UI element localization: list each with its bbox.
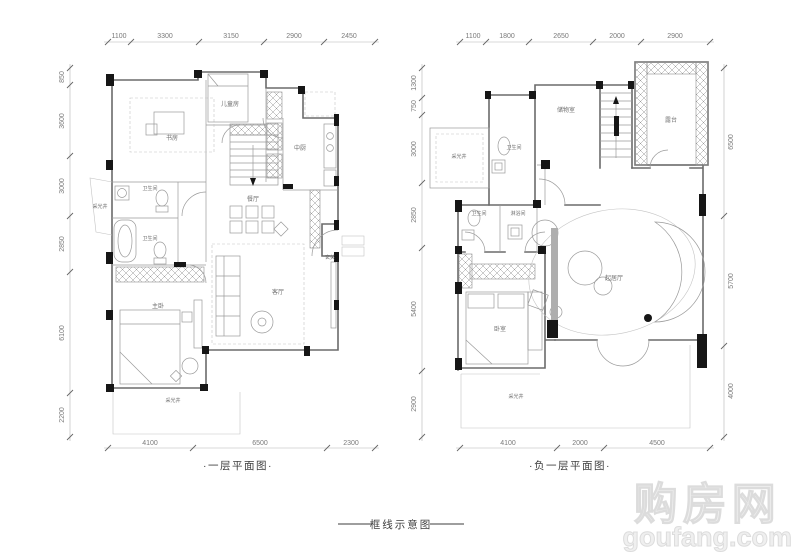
svg-text:2300: 2300 xyxy=(343,440,359,447)
room-label-kids: 儿童房 xyxy=(221,100,239,108)
room-label-bath-upper: 卫生间 xyxy=(506,144,521,151)
svg-text:3600: 3600 xyxy=(59,113,66,129)
svg-text:4100: 4100 xyxy=(142,440,158,447)
svg-text:2200: 2200 xyxy=(59,407,66,423)
svg-text:2000: 2000 xyxy=(572,440,588,447)
room-label-lightwell-bottom: 采光井 xyxy=(508,393,523,400)
svg-text:750: 750 xyxy=(411,100,418,112)
svg-text:5400: 5400 xyxy=(411,301,418,317)
first-floor-outer-walls xyxy=(112,72,338,388)
svg-text:4000: 4000 xyxy=(728,383,735,399)
svg-text:3000: 3000 xyxy=(411,141,418,157)
svg-text:1800: 1800 xyxy=(499,33,515,40)
svg-text:2850: 2850 xyxy=(411,207,418,223)
room-label-bath-lower: 卫生间 xyxy=(471,210,486,217)
svg-text:6500: 6500 xyxy=(252,440,268,447)
room-label-storage: 储物室 xyxy=(557,106,575,114)
svg-text:2900: 2900 xyxy=(667,33,683,40)
watermark-cn: 购房网 xyxy=(623,483,793,527)
room-label-master: 主卧 xyxy=(152,302,164,310)
footer-legend: 框线示意图 xyxy=(338,518,464,531)
svg-text:5700: 5700 xyxy=(728,273,735,289)
room-label-study: 书房 xyxy=(166,134,178,142)
svg-text:3000: 3000 xyxy=(59,178,66,194)
svg-text:2850: 2850 xyxy=(59,236,66,252)
watermark-site: goufang.com xyxy=(623,524,793,551)
basement-caption: ·负一层平面图· xyxy=(529,459,611,472)
svg-text:6100: 6100 xyxy=(59,325,66,341)
watermark: 购房网 goufang.com xyxy=(623,483,793,551)
room-label-living: 客厅 xyxy=(272,288,284,296)
svg-text:850: 850 xyxy=(59,71,66,83)
basement-terrace xyxy=(635,62,708,165)
basement-piers xyxy=(455,81,707,370)
svg-text:3150: 3150 xyxy=(223,33,239,40)
room-label-bath-upper: 卫生间 xyxy=(142,185,157,192)
basement-bath-fixtures xyxy=(462,137,522,240)
first-floor-outside xyxy=(90,92,364,434)
svg-text:2900: 2900 xyxy=(411,396,418,412)
room-label-family: 起居厅 xyxy=(605,274,623,282)
plan-first-floor: 书房 儿童房 中厨 卫生间 卫生间 采光井 餐厅 玄关 客厅 主卧 采光井 11… xyxy=(59,33,379,472)
room-label-dining: 餐厅 xyxy=(247,195,259,203)
basement-doors xyxy=(465,150,668,366)
room-label-terrace: 露台 xyxy=(665,116,677,124)
room-label-lightwell-bottom: 采光井 xyxy=(165,397,180,404)
room-label-bedroom: 卧室 xyxy=(494,325,506,333)
first-floor-dining-table xyxy=(230,206,288,236)
plan-basement: 采光井 储物室 露台 卫生间 卫生间 淋浴间 卧室 起居厅 采光井 1100 1… xyxy=(411,33,735,472)
svg-text:4100: 4100 xyxy=(500,440,516,447)
svg-text:2450: 2450 xyxy=(341,33,357,40)
svg-text:4500: 4500 xyxy=(649,440,665,447)
basement-stairs xyxy=(600,93,632,158)
first-floor-master-furniture xyxy=(116,267,204,384)
floor-plan-svg: 书房 儿童房 中厨 卫生间 卫生间 采光井 餐厅 玄关 客厅 主卧 采光井 11… xyxy=(0,0,800,555)
first-floor-closet-column xyxy=(267,92,282,178)
first-floor-bathroom-fixtures xyxy=(114,186,168,264)
room-label-kitchen: 中厨 xyxy=(294,144,306,152)
first-floor-caption: ·一层平面图· xyxy=(203,460,273,472)
svg-text:1300: 1300 xyxy=(411,75,418,91)
room-label-lightwell-left: 采光井 xyxy=(92,203,107,210)
floor-plan-page: 书房 儿童房 中厨 卫生间 卫生间 采光井 餐厅 玄关 客厅 主卧 采光井 11… xyxy=(0,0,800,555)
svg-text:3300: 3300 xyxy=(157,33,173,40)
svg-text:2900: 2900 xyxy=(286,33,302,40)
svg-text:2650: 2650 xyxy=(553,33,569,40)
room-label-foyer: 玄关 xyxy=(325,254,335,261)
basement-outside xyxy=(461,345,690,428)
basement-dimensions: 1100 1800 2650 2000 2900 1300 750 3000 2… xyxy=(411,33,735,451)
first-floor-study-furniture xyxy=(130,98,214,152)
room-label-bath-lower: 卫生间 xyxy=(142,235,157,242)
room-label-lightwell-top: 采光井 xyxy=(451,153,466,160)
svg-text:1100: 1100 xyxy=(111,33,126,40)
footer-caption: 框线示意图 xyxy=(370,518,433,531)
svg-text:2000: 2000 xyxy=(609,33,625,40)
svg-text:1100: 1100 xyxy=(465,33,480,40)
room-label-shower: 淋浴间 xyxy=(510,210,525,217)
svg-text:6500: 6500 xyxy=(728,134,735,150)
